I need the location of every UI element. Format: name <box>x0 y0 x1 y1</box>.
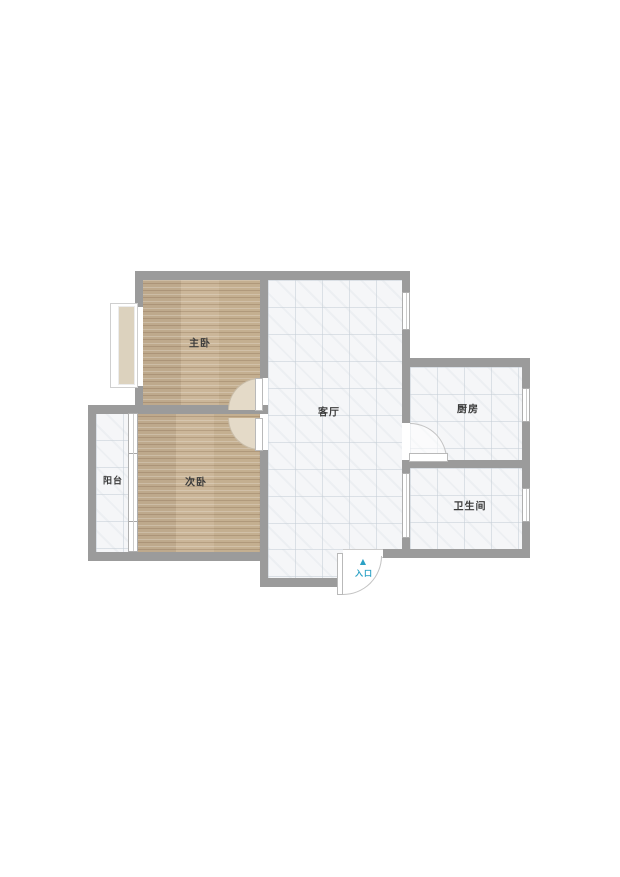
living-room-floor-extension <box>268 549 343 578</box>
wall-living-right-2 <box>402 330 410 423</box>
bathroom-right-window <box>522 488 530 522</box>
wall-kitchen-top <box>402 358 530 367</box>
entrance-arrow-icon: ▲ <box>360 558 366 566</box>
kitchen-window <box>522 388 530 422</box>
second-bedroom-door-leaf <box>255 418 263 451</box>
wall-bedroom-living-upper <box>260 271 268 378</box>
wall-master-left-upper <box>135 271 143 307</box>
window-tick <box>129 521 137 522</box>
wall-outer-right-2 <box>522 422 530 488</box>
wall-living-right-1 <box>402 271 410 292</box>
entrance-label: 入口 <box>355 568 373 579</box>
room-label-kitchen: 厨房 <box>457 401 479 416</box>
balcony-sliding-window <box>128 413 138 552</box>
wall-balcony-left <box>88 405 96 561</box>
room-label-bathroom: 卫生间 <box>454 498 487 513</box>
bathroom-left-window <box>402 473 410 538</box>
entrance-door-leaf <box>337 553 343 595</box>
wall-outer-right-3 <box>522 522 530 558</box>
master-bay-window <box>110 303 138 388</box>
wall-outer-right-1 <box>522 358 530 388</box>
wall-bedroom-living-lower <box>260 450 268 587</box>
window-tick <box>129 453 137 454</box>
living-room-window <box>402 292 410 330</box>
room-label-second-bedroom: 次卧 <box>185 474 207 489</box>
kitchen-door-leaf <box>409 453 448 462</box>
wall-master-left-lower <box>135 386 143 414</box>
wall-bottom-left <box>88 552 268 561</box>
wall-living-right-4 <box>402 538 410 558</box>
master-bedroom-door-leaf <box>255 378 263 411</box>
floorplan-canvas: ▲ 入口 主卧 次卧 阳台 客厅 厨房 卫生间 <box>0 0 620 877</box>
master-bay-window-sill <box>118 306 135 385</box>
wall-top <box>135 271 410 280</box>
wall-living-bump-bottom <box>260 578 343 587</box>
room-label-balcony: 阳台 <box>103 474 123 487</box>
room-label-master-bedroom: 主卧 <box>189 335 211 350</box>
room-label-living-room: 客厅 <box>318 404 340 419</box>
